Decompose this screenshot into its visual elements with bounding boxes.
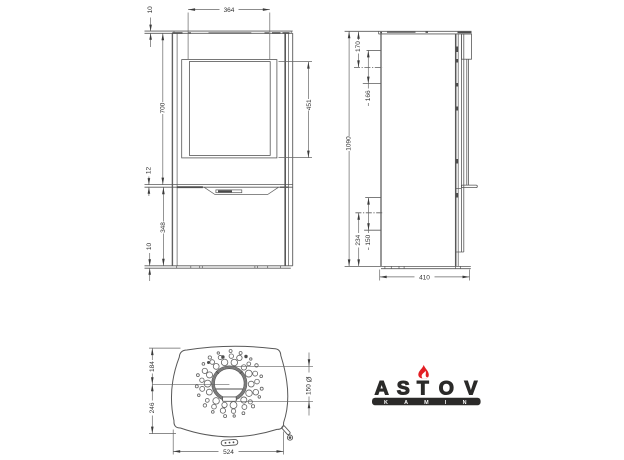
svg-text:246: 246 — [149, 402, 156, 413]
svg-text:KAMIN: KAMIN — [384, 400, 483, 406]
svg-text:ASTOV: ASTOV — [375, 378, 478, 400]
svg-text:10: 10 — [147, 6, 154, 14]
svg-text:10: 10 — [146, 243, 153, 251]
svg-text:451: 451 — [306, 99, 313, 110]
svg-text:1090: 1090 — [346, 136, 353, 151]
svg-text:234: 234 — [355, 234, 362, 245]
svg-text:166: 166 — [365, 90, 372, 101]
svg-text:410: 410 — [419, 275, 430, 282]
svg-text:Ø: Ø — [305, 376, 314, 382]
svg-text:170: 170 — [355, 41, 362, 52]
svg-text:150: 150 — [306, 384, 313, 395]
svg-text:700: 700 — [159, 102, 166, 113]
svg-text:364: 364 — [224, 7, 235, 14]
svg-text:184: 184 — [149, 361, 156, 372]
svg-text:12: 12 — [145, 167, 152, 175]
svg-text:348: 348 — [160, 222, 167, 233]
svg-text:150: 150 — [365, 234, 372, 245]
svg-text:524: 524 — [223, 449, 234, 456]
